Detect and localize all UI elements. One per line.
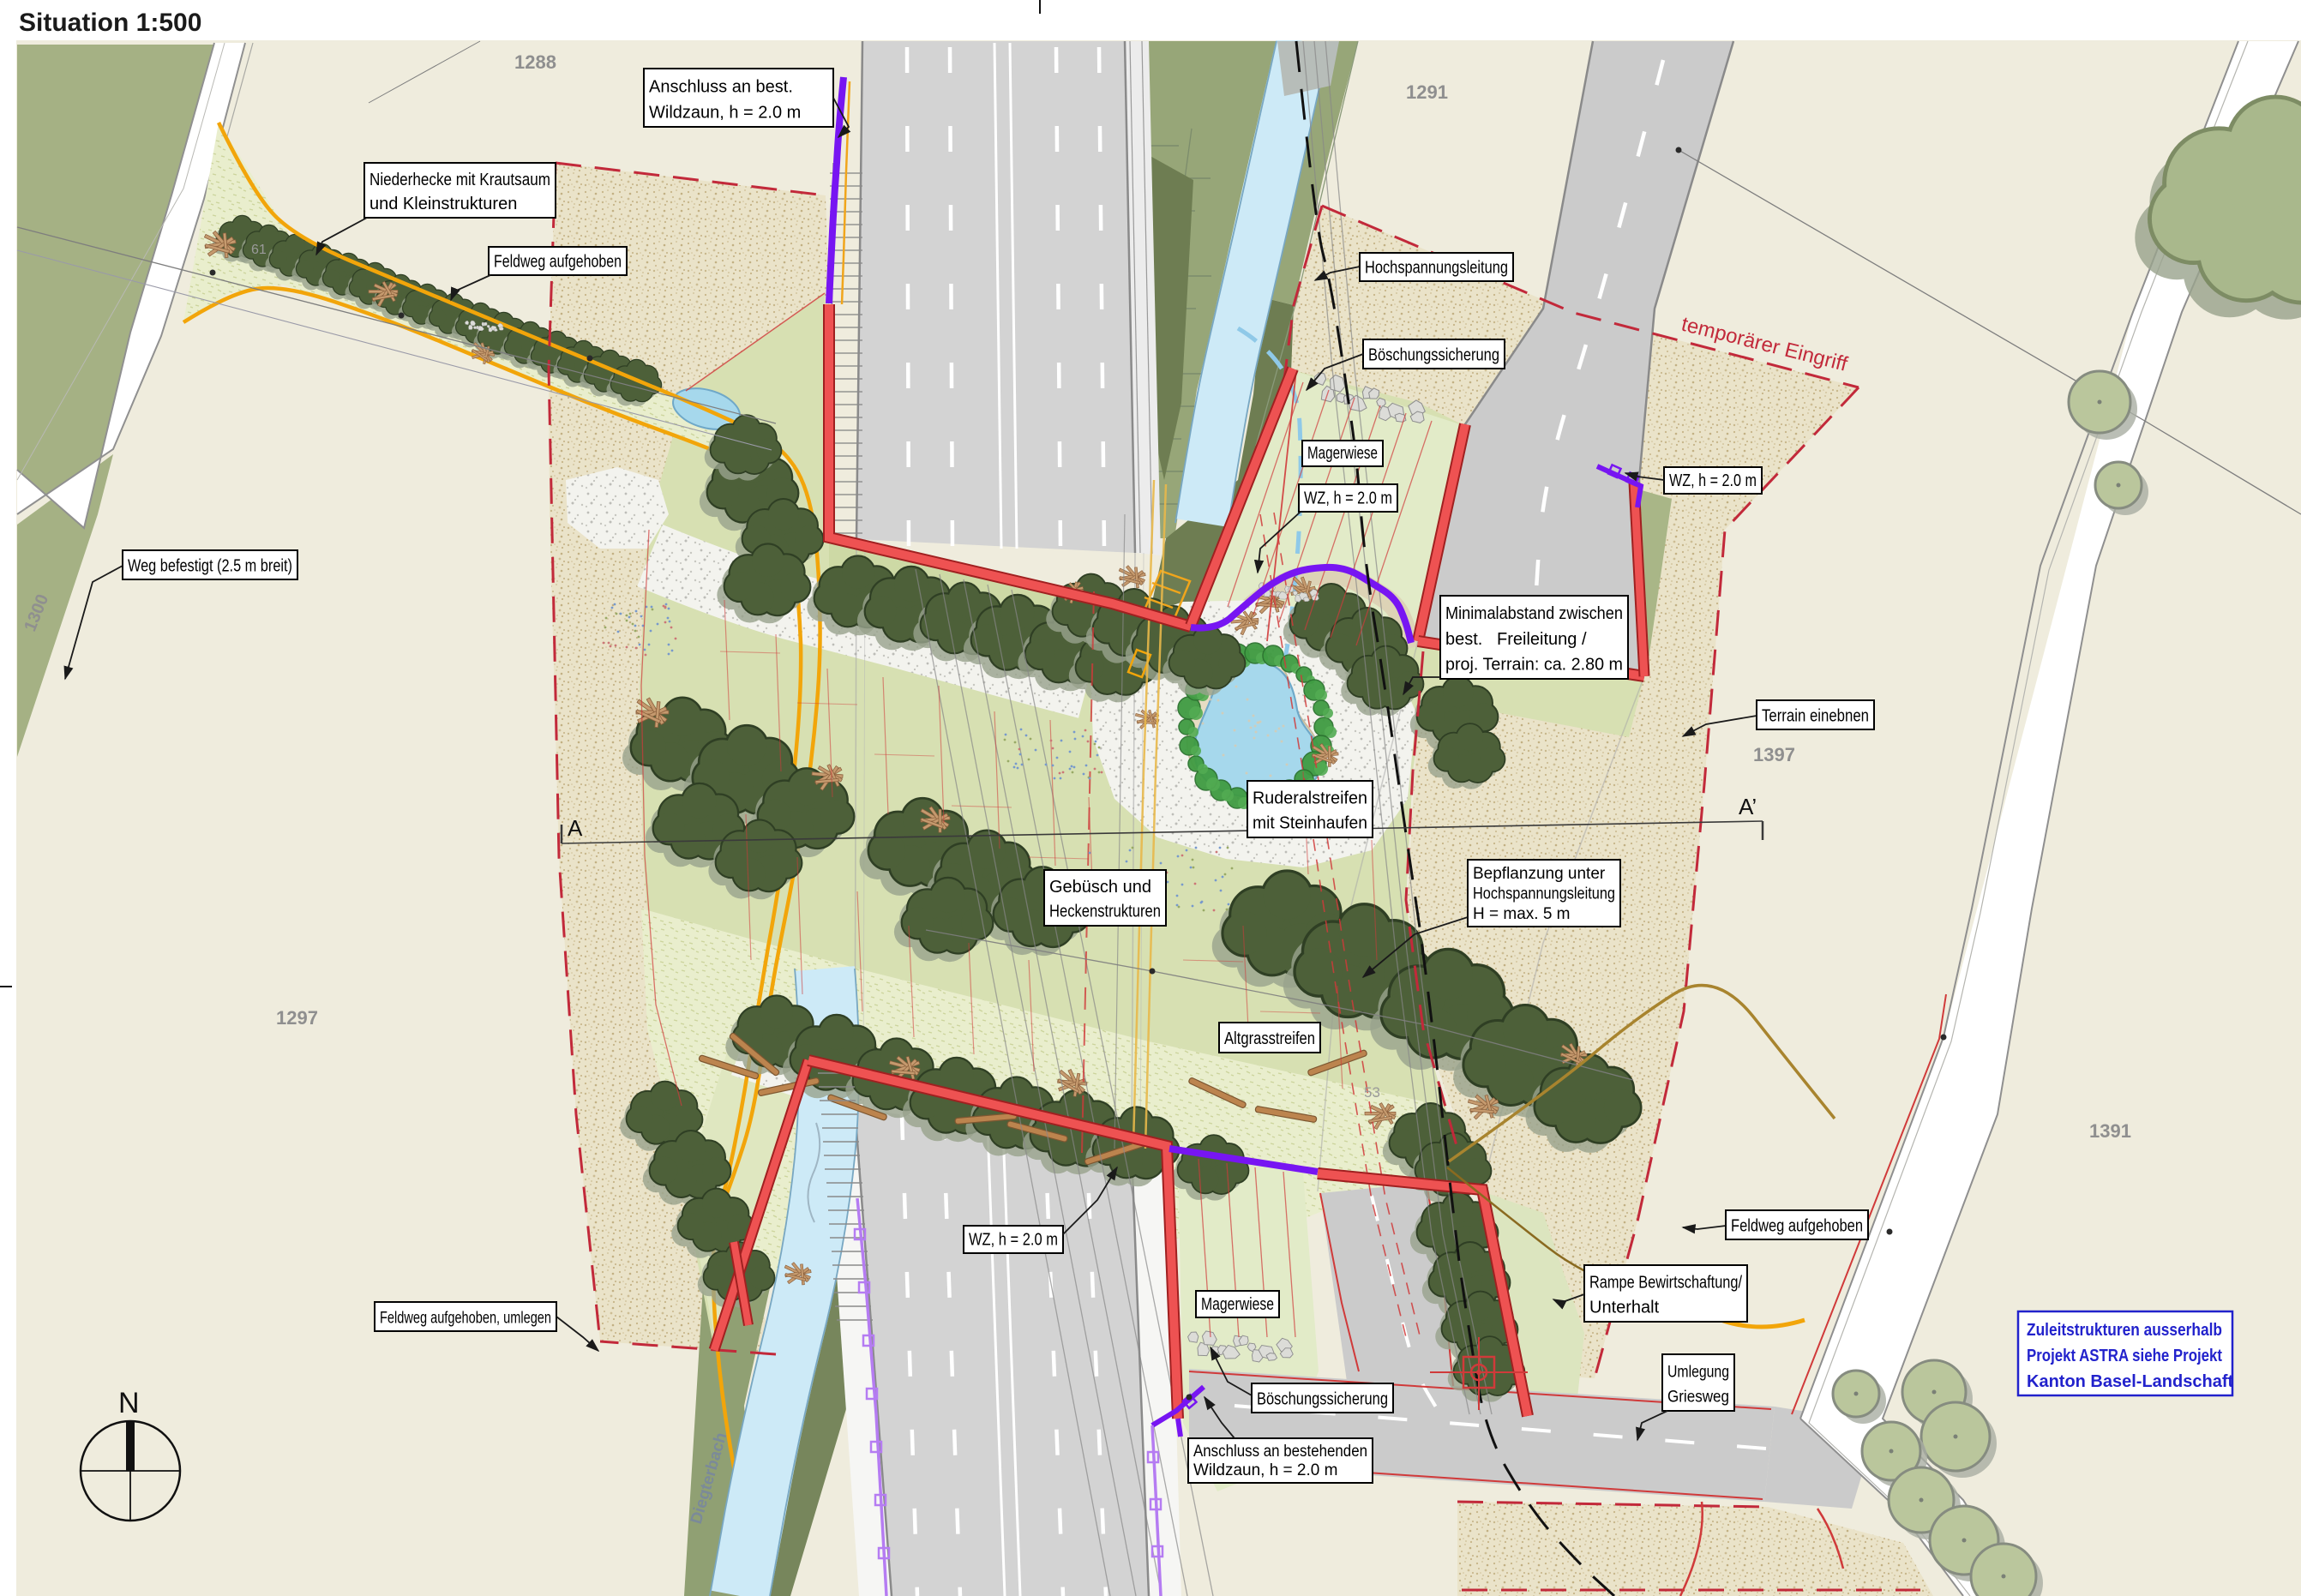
svg-text:Magerwiese: Magerwiese <box>1307 444 1378 463</box>
svg-text:Hochspannungsleitung: Hochspannungsleitung <box>1473 885 1615 903</box>
svg-text:1288: 1288 <box>514 51 556 73</box>
svg-text:Gebüsch und: Gebüsch und <box>1049 878 1151 897</box>
svg-text:A: A <box>568 815 583 841</box>
svg-text:Unterhalt: Unterhalt <box>1589 1299 1660 1317</box>
svg-text:Projekt ASTRA siehe Projekt: Projekt ASTRA siehe Projekt <box>2027 1347 2222 1365</box>
svg-text:A’: A’ <box>1739 794 1757 819</box>
svg-text:Böschungssicherung: Böschungssicherung <box>1368 345 1499 364</box>
svg-text:Zuleitstrukturen ausserhalb: Zuleitstrukturen ausserhalb <box>2027 1321 2222 1340</box>
svg-text:Feldweg aufgehoben, umlegen: Feldweg aufgehoben, umlegen <box>380 1309 551 1327</box>
svg-text:Wildzaun, h = 2.0 m: Wildzaun, h = 2.0 m <box>1193 1461 1337 1479</box>
svg-text:Terrain einebnen: Terrain einebnen <box>1762 706 1869 725</box>
svg-text:best. Freileitung /: best. Freileitung / <box>1445 630 1587 649</box>
svg-text:WZ, h = 2.0 m: WZ, h = 2.0 m <box>1304 489 1392 508</box>
svg-text:1297: 1297 <box>276 1007 318 1029</box>
svg-text:1397: 1397 <box>1753 744 1795 765</box>
svg-text:Ruderalstreifen: Ruderalstreifen <box>1253 789 1367 808</box>
svg-text:Minimalabstand zwischen: Minimalabstand zwischen <box>1445 604 1623 623</box>
svg-text:Böschungssicherung: Böschungssicherung <box>1257 1389 1388 1408</box>
svg-text:Wildzaun, h = 2.0 m: Wildzaun, h = 2.0 m <box>649 103 801 122</box>
svg-text:Weg befestigt (2.5 m breit): Weg befestigt (2.5 m breit) <box>128 556 292 575</box>
svg-text:mit Steinhaufen: mit Steinhaufen <box>1253 814 1367 833</box>
svg-text:Rampe Bewirtschaftung/: Rampe Bewirtschaftung/ <box>1589 1274 1742 1293</box>
svg-text:WZ, h = 2.0 m: WZ, h = 2.0 m <box>1669 471 1757 490</box>
svg-text:Kanton Basel-Landschaft: Kanton Basel-Landschaft <box>2027 1372 2233 1391</box>
svg-text:Anschluss an best.: Anschluss an best. <box>649 77 793 96</box>
svg-text:Umlegung: Umlegung <box>1667 1364 1729 1382</box>
svg-text:Altgrasstreifen: Altgrasstreifen <box>1224 1029 1315 1048</box>
svg-text:Anschluss an bestehenden: Anschluss an bestehenden <box>1193 1443 1367 1461</box>
svg-text:N: N <box>118 1387 140 1419</box>
svg-text:Hochspannungsleitung: Hochspannungsleitung <box>1365 259 1508 278</box>
svg-text:Griesweg: Griesweg <box>1667 1389 1729 1407</box>
svg-text:WZ, h = 2.0 m: WZ, h = 2.0 m <box>969 1231 1058 1250</box>
svg-text:Bepflanzung unter: Bepflanzung unter <box>1473 865 1606 883</box>
svg-text:Feldweg aufgehoben: Feldweg aufgehoben <box>1731 1216 1863 1235</box>
svg-text:Feldweg aufgehoben: Feldweg aufgehoben <box>494 253 622 272</box>
svg-text:proj. Terrain: ca. 2.80 m: proj. Terrain: ca. 2.80 m <box>1445 656 1623 675</box>
svg-text:1291: 1291 <box>1406 81 1448 103</box>
svg-text:53: 53 <box>1364 1084 1380 1101</box>
svg-text:61: 61 <box>251 243 267 257</box>
svg-text:Niederhecke mit Krautsaum: Niederhecke mit Krautsaum <box>369 171 550 189</box>
svg-text:Heckenstrukturen: Heckenstrukturen <box>1049 903 1161 921</box>
svg-text:Situation 1:500: Situation 1:500 <box>19 9 201 37</box>
svg-text:H = max. 5 m: H = max. 5 m <box>1473 905 1571 923</box>
svg-text:und Kleinstrukturen: und Kleinstrukturen <box>369 195 517 213</box>
svg-text:1391: 1391 <box>2089 1120 2131 1142</box>
svg-text:Magerwiese: Magerwiese <box>1201 1295 1274 1314</box>
